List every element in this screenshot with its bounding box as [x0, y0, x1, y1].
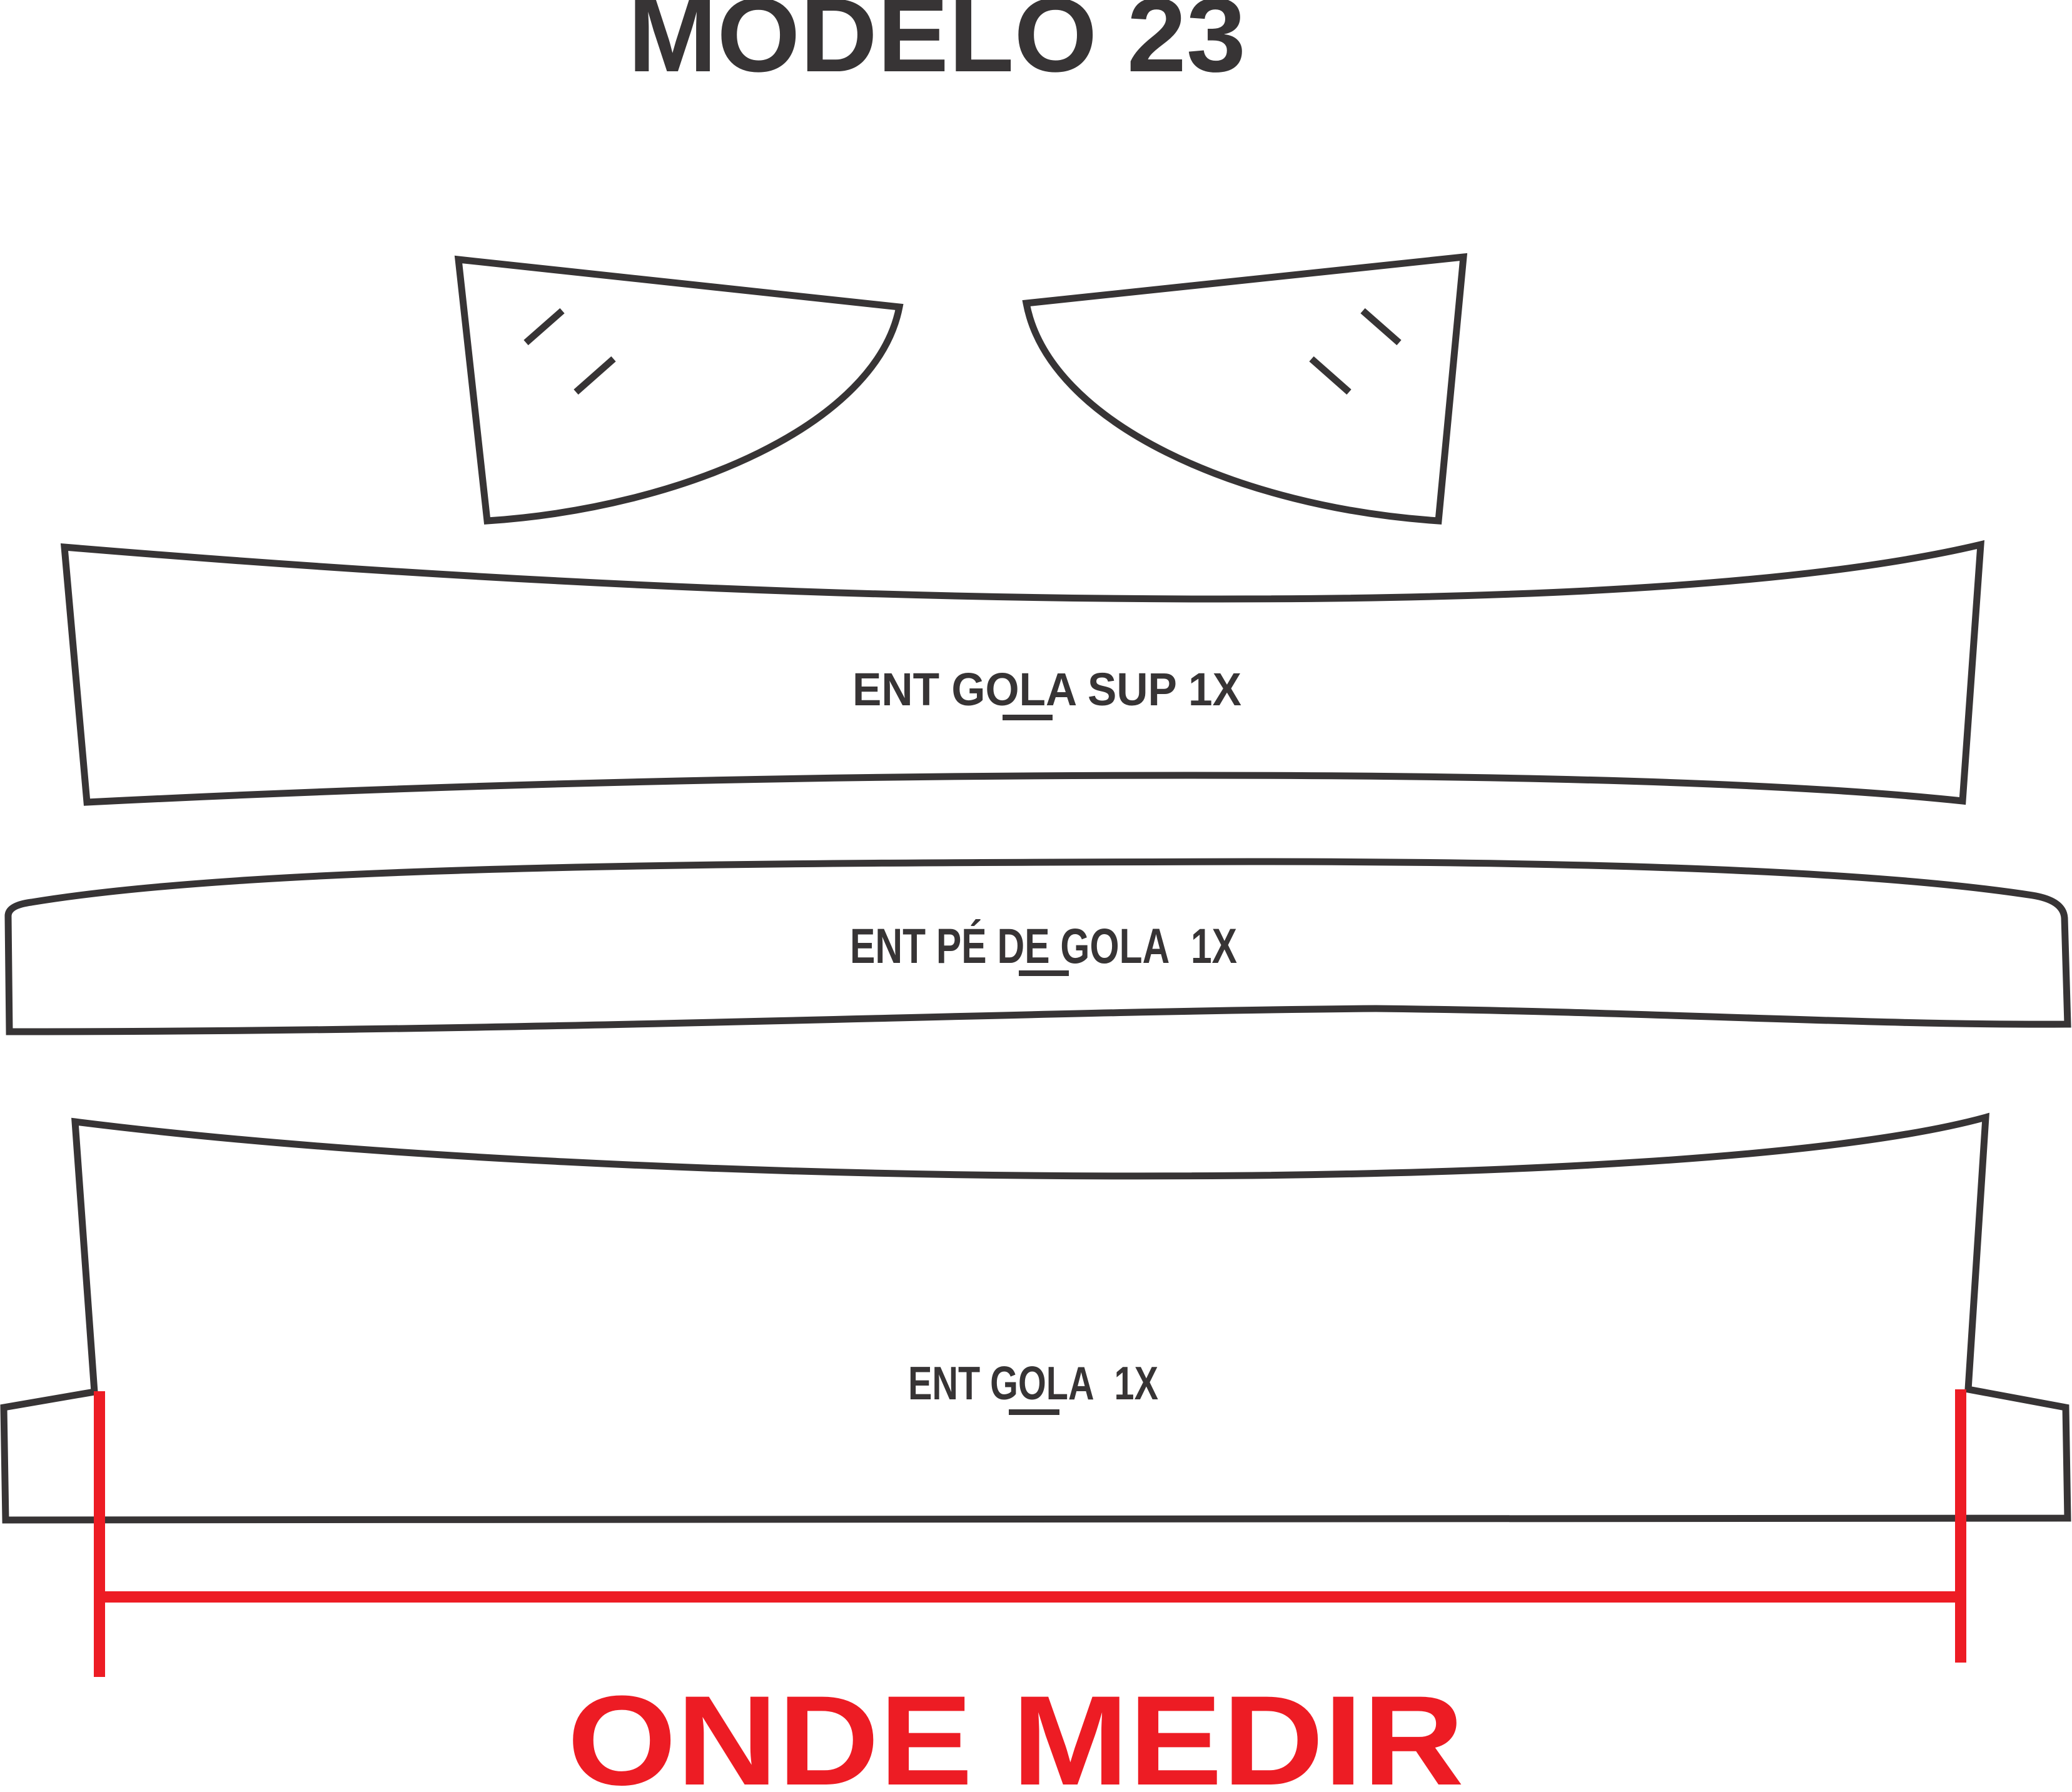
- svg-text:ENT GOLA 1X: ENT GOLA 1X: [908, 1357, 1158, 1409]
- svg-text:ONDE MEDIR: ONDE MEDIR: [567, 1669, 1464, 1792]
- svg-text:ENT GOLA SUP 1X: ENT GOLA SUP 1X: [852, 663, 1241, 715]
- svg-text:ENT PÉ DE GOLA 1X: ENT PÉ DE GOLA 1X: [850, 918, 1237, 974]
- svg-text:MODELO 23: MODELO 23: [628, 0, 1246, 94]
